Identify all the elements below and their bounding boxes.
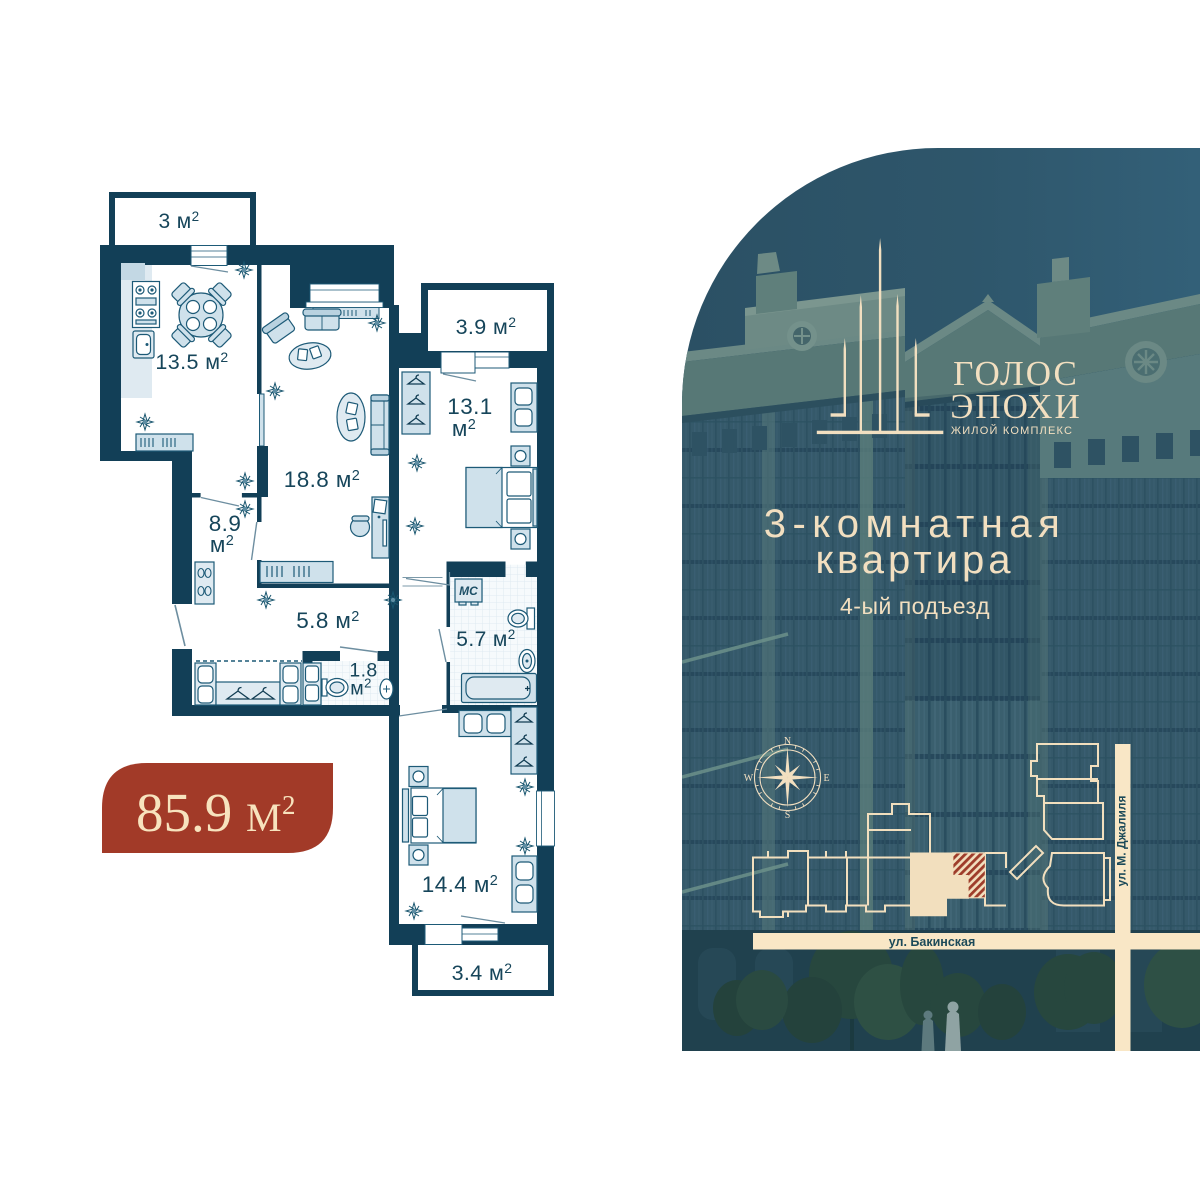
svg-text:5.7 м2: 5.7 м2 [456, 627, 515, 651]
svg-text:13.5 м2: 13.5 м2 [155, 349, 228, 374]
svg-text:ЖИЛОЙ КОМПЛЕКС: ЖИЛОЙ КОМПЛЕКС [951, 424, 1073, 437]
svg-text:ул. Бакинская: ул. Бакинская [889, 935, 976, 949]
svg-text:М: М [246, 795, 282, 840]
svg-text:3.9 м2: 3.9 м2 [456, 314, 517, 339]
svg-text:W: W [744, 773, 754, 784]
svg-text:ЭПОХИ: ЭПОХИ [950, 387, 1081, 426]
svg-text:18.8 м2: 18.8 м2 [284, 467, 360, 492]
svg-text:5.8 м2: 5.8 м2 [296, 608, 359, 633]
svg-text:ул. М. Джалиля: ул. М. Джалиля [1115, 796, 1129, 887]
svg-text:4-ый подъезд: 4-ый подъезд [840, 593, 990, 619]
svg-text:МС: МС [459, 584, 478, 598]
svg-text:S: S [785, 810, 791, 821]
svg-text:14.4 м2: 14.4 м2 [422, 872, 498, 897]
svg-text:85.9: 85.9 [136, 782, 232, 843]
svg-text:2: 2 [282, 790, 296, 820]
svg-text:квартира: квартира [815, 538, 1014, 582]
svg-text:3.4 м2: 3.4 м2 [452, 960, 513, 985]
svg-text:N: N [784, 736, 791, 747]
svg-text:E: E [823, 773, 829, 784]
